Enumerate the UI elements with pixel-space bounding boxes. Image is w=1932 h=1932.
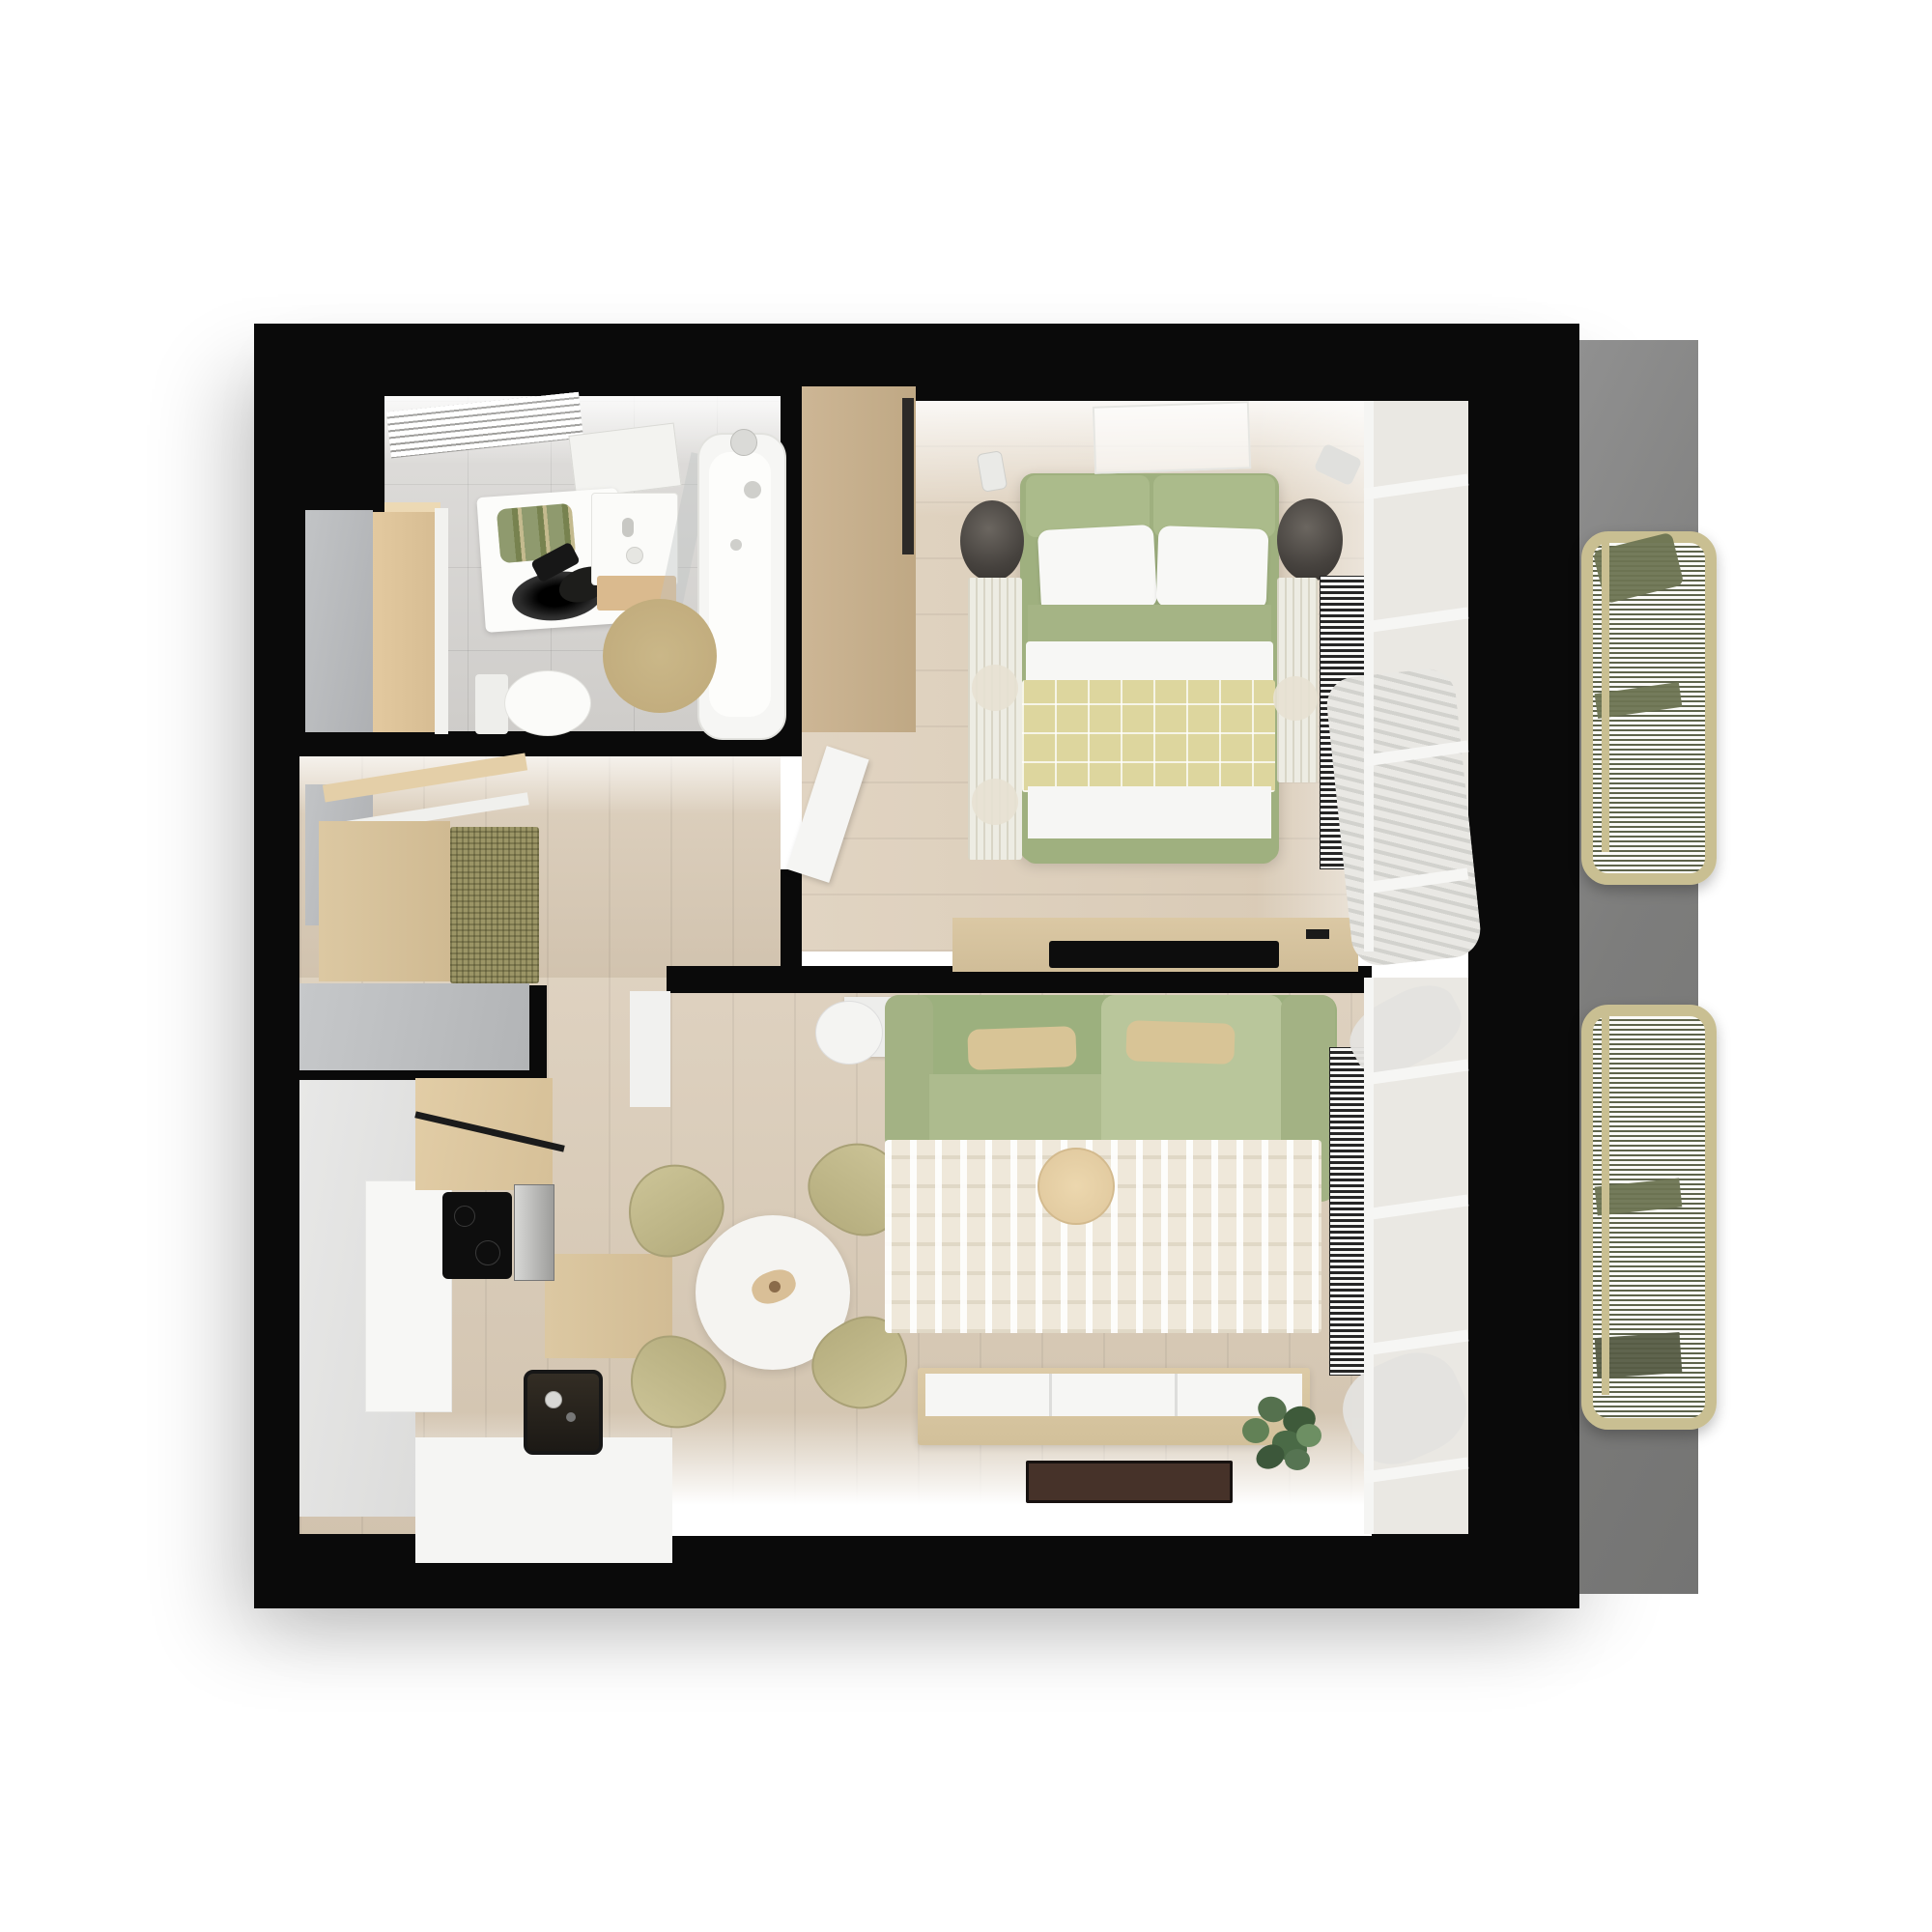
toilet-tank [475,674,508,734]
dining-cup [769,1281,781,1293]
wall-stub-white [630,991,670,1107]
sideboard-seam-2 [1175,1374,1178,1416]
bed-throw-blanket [1022,680,1275,792]
lounger-lower-rail [1602,1016,1609,1395]
nightstand-right [1277,498,1343,582]
toilet-bowl [504,670,591,736]
plant-leaf-5 [1296,1424,1321,1447]
bathroom-door-frame [435,508,448,734]
kitchen-sink [524,1370,603,1455]
sofa-pillow-left [967,1026,1076,1070]
bed-pillow-right [1156,526,1269,611]
kitchen-faucet [545,1391,562,1408]
wall-left-lower [254,744,299,1608]
plant-leaf-3 [1242,1418,1269,1443]
sideboard-top-panels [925,1374,1302,1416]
shower-head [730,429,757,456]
sideboard-seam-1 [1049,1374,1052,1416]
plant-leaf-7 [1285,1449,1310,1470]
bathtub-drain [730,539,742,551]
induction-hob [442,1192,512,1279]
hall-closet [319,821,450,981]
dark-doormat [1026,1461,1233,1503]
bathtub-inner [709,452,771,717]
kitchen-white-base [415,1437,672,1563]
bed-duvet-bottom [1028,786,1271,844]
gray-panel-upper [305,510,373,732]
bed-pillow-left [1037,525,1157,613]
bed-foot [1024,838,1275,864]
wall-art-frame [1093,401,1251,474]
tv-remote [1306,929,1329,939]
coffee-side-table [1037,1148,1115,1225]
bedroom-rug-motif-3 [1273,676,1318,721]
wardrobe-tv-strip [902,398,914,554]
bathroom-round-rug [603,599,717,713]
vanity-drain [626,547,643,564]
oven [514,1184,554,1281]
wardrobe [802,386,916,732]
bedroom-rug-motif-1 [972,665,1018,711]
gray-slab-kitchen [299,983,529,1070]
hall-woven-mat [450,827,539,983]
living-window-frame-edge [1364,978,1374,1534]
wall-right [1468,324,1579,1608]
hob-burner-1 [454,1206,475,1227]
wall-top [254,324,1579,401]
bedroom-tv-flat [1049,941,1279,968]
vanity-faucet [622,518,634,537]
mirror-cabinet [568,423,681,499]
kitchen-tall-cabinet [365,1180,452,1412]
bathroom-door-wood [373,512,435,732]
kitchen-sink-drain [566,1412,576,1422]
sofa-pillow-right [1125,1020,1235,1065]
desk-chair [815,1001,883,1065]
bedroom-rug-motif-2 [972,779,1018,825]
bedroom-window-frame-edge [1364,401,1374,952]
kitchen-wood-counter-upper [415,1078,553,1190]
floor-plan-canvas [0,0,1932,1932]
hob-burner-2 [475,1240,500,1265]
sofa-armrest-left [885,995,933,1151]
lounger-upper-rail [1602,541,1609,852]
shower-tap [744,481,761,498]
nightstand-left [960,500,1024,582]
